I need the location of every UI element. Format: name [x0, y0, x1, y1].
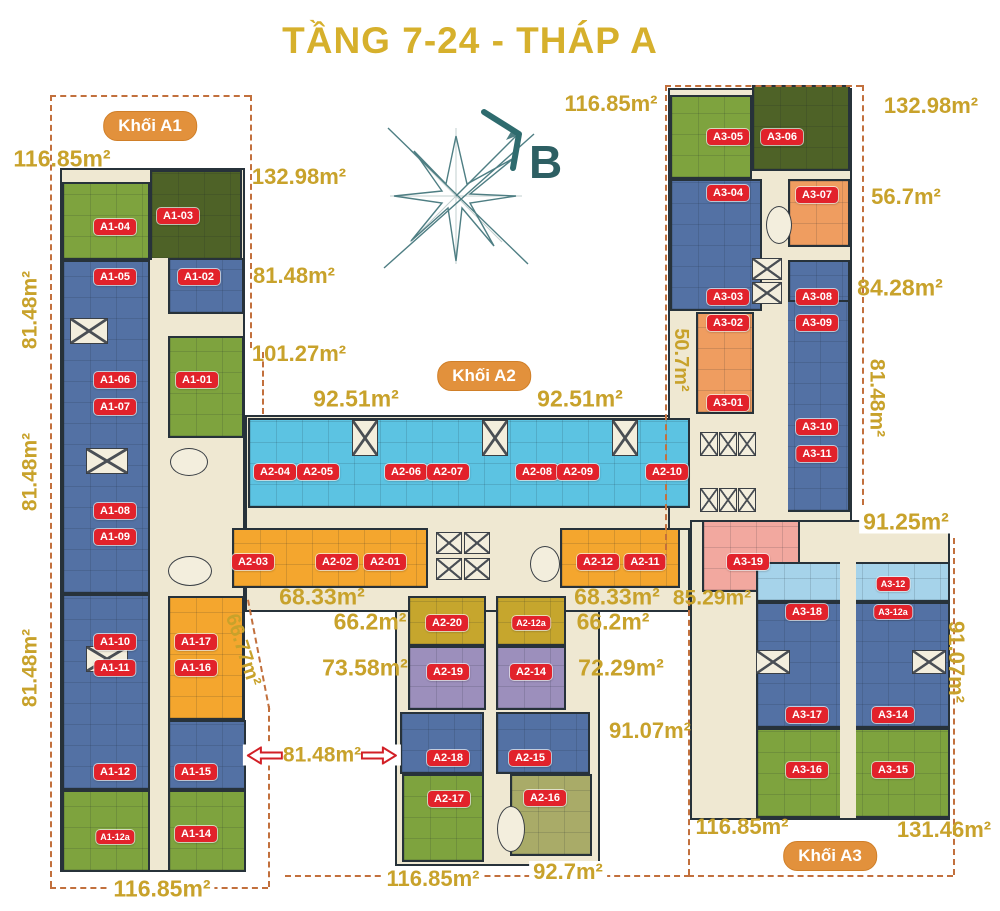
unit-label-a2-10[interactable]: A2-10	[646, 464, 688, 480]
area-label: 68.33m²	[574, 586, 660, 609]
unit-label-a3-05[interactable]: A3-05	[707, 129, 749, 145]
unit-label-a2-01[interactable]: A2-01	[364, 554, 406, 570]
unit-label-a3-04[interactable]: A3-04	[707, 185, 749, 201]
unit-label-a1-05[interactable]: A1-05	[94, 269, 136, 285]
elevator-shaft	[464, 558, 490, 580]
unit-label-a2-16[interactable]: A2-16	[524, 790, 566, 806]
unit-label-a3-19[interactable]: A3-19	[727, 554, 769, 570]
area-label: 66.2m²	[577, 611, 650, 634]
elevator-shaft	[738, 488, 756, 512]
red-arrow-left-icon	[247, 747, 283, 765]
area-label-text: 66.2m²	[577, 609, 650, 635]
area-label: 92.7m²	[529, 861, 607, 883]
stair-core	[497, 806, 525, 852]
unit-label-a2-03[interactable]: A2-03	[232, 554, 274, 570]
corridor-a3-bottom	[840, 562, 856, 818]
area-label: 84.28m²	[857, 277, 943, 300]
unit-label-a2-07[interactable]: A2-07	[427, 464, 469, 480]
elevator-shaft	[464, 532, 490, 554]
area-label: 116.85m²	[696, 816, 789, 838]
area-label-text: 73.58m²	[322, 655, 408, 681]
unit-label-a3-12a[interactable]: A3-12a	[874, 605, 912, 619]
elevator-shaft	[86, 448, 128, 474]
block-badge-khoi-a2: Khối A2	[437, 361, 531, 391]
elevator-shaft	[738, 432, 756, 456]
unit-label-a1-14[interactable]: A1-14	[175, 826, 217, 842]
area-label: 56.7m²	[871, 186, 941, 208]
unit-label-a3-08[interactable]: A3-08	[796, 289, 838, 305]
unit-area	[168, 258, 244, 314]
unit-label-a3-02[interactable]: A3-02	[707, 315, 749, 331]
area-label: 92.51m²	[537, 388, 623, 411]
area-label-text: 81.48m²	[866, 359, 889, 437]
elevator-shaft	[436, 558, 462, 580]
area-label: 132.98m²	[252, 166, 346, 188]
area-label-text: 116.85m²	[387, 866, 480, 891]
unit-label-a1-04[interactable]: A1-04	[94, 219, 136, 235]
boundary-dash	[665, 85, 862, 87]
unit-label-a2-20[interactable]: A2-20	[426, 615, 468, 631]
area-label-text: 92.7m²	[533, 859, 603, 884]
area-label: 91.25m²	[859, 511, 953, 534]
unit-label-a1-06[interactable]: A1-06	[94, 372, 136, 388]
stair-core	[766, 206, 792, 244]
unit-label-a1-11[interactable]: A1-11	[94, 660, 135, 676]
area-label-text: 81.48m²	[19, 433, 42, 511]
area-label: 81.48m²	[253, 265, 335, 287]
area-label-text: 91.07m²	[944, 621, 969, 703]
unit-label-a1-15[interactable]: A1-15	[175, 764, 217, 780]
area-label: 116.85m²	[383, 868, 484, 890]
red-arrow-right-icon	[361, 747, 397, 765]
area-label-text: 84.28m²	[857, 275, 943, 301]
unit-label-a3-01[interactable]: A3-01	[707, 395, 749, 411]
area-label: 50.7m²	[671, 328, 691, 391]
area-label: 72.29m²	[578, 657, 664, 680]
unit-label-a3-18[interactable]: A3-18	[786, 604, 828, 620]
area-label-text: 116.85m²	[113, 876, 210, 902]
unit-label-a3-03[interactable]: A3-03	[707, 289, 749, 305]
area-label: 132.98m²	[884, 95, 978, 117]
unit-label-a3-09[interactable]: A3-09	[796, 315, 838, 331]
unit-label-a1-12[interactable]: A1-12	[94, 764, 136, 780]
area-label: 66.2m²	[334, 611, 407, 634]
elevator-shaft	[719, 488, 737, 512]
unit-area	[62, 594, 150, 790]
area-label-text: 81.48m²	[253, 263, 335, 288]
unit-label-a2-15[interactable]: A2-15	[509, 750, 551, 766]
area-label-text: 81.48m²	[283, 744, 361, 767]
area-label: 81.48m²	[243, 745, 401, 766]
area-label-text: 91.07m²	[609, 718, 691, 743]
unit-label-a2-06[interactable]: A2-06	[385, 464, 427, 480]
unit-label-a2-12[interactable]: A2-12	[577, 554, 619, 570]
unit-label-a3-17[interactable]: A3-17	[786, 707, 828, 723]
area-label: 91.07m²	[945, 621, 967, 703]
boundary-dash	[50, 95, 52, 887]
unit-label-a2-09[interactable]: A2-09	[557, 464, 599, 480]
unit-label-a2-17[interactable]: A2-17	[428, 791, 470, 807]
unit-label-a2-18[interactable]: A2-18	[427, 750, 469, 766]
area-label: 81.48m²	[20, 629, 41, 707]
block-badge-khoi-a1: Khối A1	[103, 111, 197, 141]
unit-label-a2-08[interactable]: A2-08	[516, 464, 558, 480]
area-label: 131.46m²	[897, 819, 991, 841]
area-label-text: 92.51m²	[313, 386, 399, 412]
area-label-text: 68.33m²	[574, 584, 660, 610]
area-label-text: 132.98m²	[884, 93, 978, 118]
page-title: TẦNG 7-24 - THÁP A	[0, 20, 940, 62]
unit-label-a2-05[interactable]: A2-05	[297, 464, 339, 480]
corridor-a1	[152, 258, 168, 790]
north-arrow-icon	[484, 112, 519, 168]
elevator-shaft	[752, 258, 782, 280]
unit-label-a3-10[interactable]: A3-10	[796, 419, 838, 435]
stair-core	[530, 546, 560, 582]
unit-label-a2-12a[interactable]: A2-12a	[512, 616, 550, 630]
elevator-shaft	[719, 432, 737, 456]
unit-label-a1-10[interactable]: A1-10	[94, 634, 136, 650]
area-label: 116.85m²	[109, 878, 214, 901]
boundary-dash	[665, 85, 667, 560]
unit-area	[752, 85, 850, 171]
unit-label-a2-19[interactable]: A2-19	[427, 664, 469, 680]
area-label-text: 56.7m²	[871, 184, 941, 209]
unit-label-a1-09[interactable]: A1-09	[94, 529, 136, 545]
elevator-shaft	[700, 488, 718, 512]
unit-label-a1-17[interactable]: A1-17	[175, 634, 217, 650]
unit-label-a1-12a[interactable]: A1-12a	[96, 830, 134, 844]
area-label: 92.51m²	[313, 388, 399, 411]
area-label: 101.27m²	[252, 343, 346, 365]
floor-plan: TẦNG 7-24 - THÁP A B Khối A1Khối A2Khối …	[0, 0, 1000, 911]
boundary-dash	[688, 875, 953, 877]
area-label: 116.85m²	[13, 148, 110, 171]
area-label-text: 68.33m²	[279, 584, 365, 610]
area-label: 91.07m²	[609, 720, 691, 742]
area-label: 81.48m²	[20, 433, 41, 511]
area-label: 85.29m²	[673, 588, 751, 609]
area-label-text: 116.85m²	[565, 91, 658, 116]
area-label: 68.33m²	[279, 586, 365, 609]
boundary-dash	[285, 875, 690, 877]
block-badge-khoi-a3: Khối A3	[783, 841, 877, 871]
unit-label-a3-14[interactable]: A3-14	[872, 707, 914, 723]
area-label-text: 66.2m²	[334, 609, 407, 635]
elevator-shaft	[612, 420, 638, 456]
elevator-shaft	[352, 420, 378, 456]
stair-core	[168, 556, 212, 586]
unit-label-a3-16[interactable]: A3-16	[786, 762, 828, 778]
elevator-shaft	[752, 282, 782, 304]
unit-label-a3-11[interactable]: A3-11	[796, 446, 837, 462]
compass-north-label: B	[529, 136, 562, 188]
area-label: 81.48m²	[20, 271, 41, 349]
boundary-dash	[268, 706, 270, 887]
area-label: 116.85m²	[565, 93, 658, 115]
area-label: 73.58m²	[322, 657, 408, 680]
area-label-text: 85.29m²	[673, 587, 751, 610]
unit-label-a1-02[interactable]: A1-02	[178, 269, 220, 285]
area-label-text: 81.48m²	[19, 271, 42, 349]
area-label-text: 50.7m²	[670, 328, 692, 391]
area-label-text: 91.25m²	[863, 509, 949, 535]
unit-label-a1-08[interactable]: A1-08	[94, 503, 136, 519]
area-label-text: 132.98m²	[252, 164, 346, 189]
elevator-shaft	[436, 532, 462, 554]
elevator-shaft	[700, 432, 718, 456]
unit-area	[402, 774, 484, 862]
unit-label-a2-11[interactable]: A2-11	[624, 554, 665, 570]
unit-label-a3-06[interactable]: A3-06	[761, 129, 803, 145]
unit-label-a2-02[interactable]: A2-02	[316, 554, 358, 570]
unit-label-a3-07[interactable]: A3-07	[796, 187, 838, 203]
area-label-text: 131.46m²	[897, 817, 991, 842]
area-label-text: 116.85m²	[13, 146, 110, 172]
unit-label-a2-14[interactable]: A2-14	[510, 664, 552, 680]
compass-rose-icon: B	[366, 106, 576, 276]
unit-label-a3-15[interactable]: A3-15	[872, 762, 914, 778]
unit-label-a1-01[interactable]: A1-01	[176, 372, 218, 388]
area-label-text: 72.29m²	[578, 655, 664, 681]
unit-label-a1-03[interactable]: A1-03	[157, 208, 199, 224]
unit-label-a3-12[interactable]: A3-12	[877, 577, 910, 591]
elevator-shaft	[912, 650, 946, 674]
elevator-shaft	[482, 420, 508, 456]
area-label-text: 116.85m²	[696, 814, 789, 839]
area-label-text: 101.27m²	[252, 341, 346, 366]
area-label: 81.48m²	[867, 359, 888, 437]
area-label-text: 92.51m²	[537, 386, 623, 412]
boundary-dash	[250, 95, 252, 348]
unit-label-a1-16[interactable]: A1-16	[175, 660, 217, 676]
elevator-shaft	[70, 318, 108, 344]
elevator-shaft	[756, 650, 790, 674]
area-label-text: 81.48m²	[19, 629, 42, 707]
unit-label-a2-04[interactable]: A2-04	[254, 464, 296, 480]
boundary-dash	[50, 95, 250, 97]
unit-label-a1-07[interactable]: A1-07	[94, 399, 136, 415]
stair-core	[170, 448, 208, 476]
